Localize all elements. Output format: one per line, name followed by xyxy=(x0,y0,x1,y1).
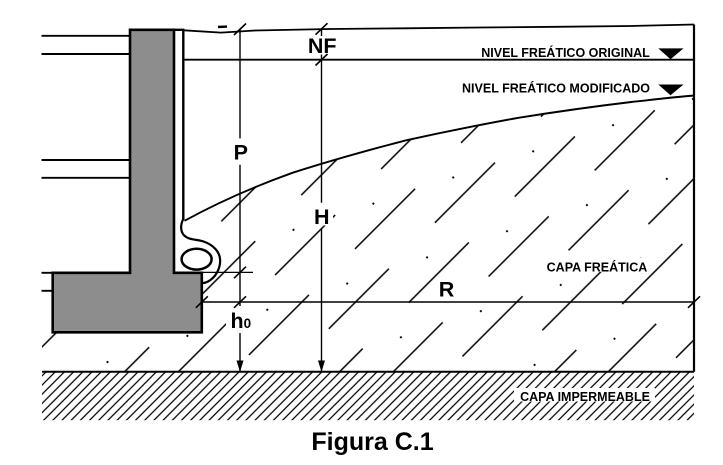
svg-text:R: R xyxy=(439,278,455,302)
svg-text:NIVEL FREÁTICO ORIGINAL: NIVEL FREÁTICO ORIGINAL xyxy=(481,45,650,60)
svg-text:CAPA IMPERMEABLE: CAPA IMPERMEABLE xyxy=(520,390,650,404)
svg-text:NF: NF xyxy=(308,34,337,58)
svg-text:Figura C.1: Figura C.1 xyxy=(311,428,433,456)
svg-text:NIVEL FREÁTICO MODIFICADO: NIVEL FREÁTICO MODIFICADO xyxy=(462,81,650,96)
svg-text:CAPA FREÁTICA: CAPA FREÁTICA xyxy=(547,259,648,274)
svg-text:P: P xyxy=(234,140,248,164)
svg-text:H: H xyxy=(314,205,330,229)
